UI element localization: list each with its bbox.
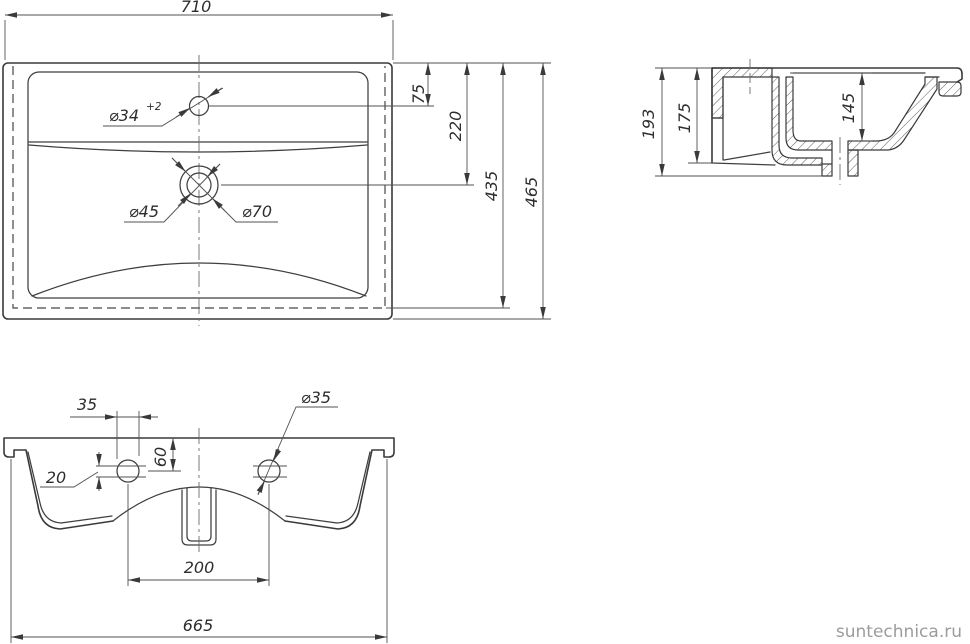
section-bottom-edge [712, 163, 775, 165]
dim-label-220: 220 [446, 111, 465, 142]
front-lip-hook [939, 82, 961, 96]
leader-arrow [178, 194, 191, 207]
dim-label-193: 193 [639, 109, 658, 140]
dim-label-faucet-tolerance: +2 [146, 101, 162, 113]
dim-label-175: 175 [675, 103, 694, 134]
mounting-hole-right [258, 460, 280, 482]
dim-label-145: 145 [839, 93, 858, 124]
drain-boss-left-wall [822, 164, 832, 176]
dim-label-35: 35 [77, 395, 97, 414]
dim-label-hole-diameter: ⌀35 [301, 388, 331, 407]
bottom-view: 35 20 60 ⌀35 200 665 [4, 388, 394, 643]
leader-arrow [172, 158, 186, 172]
dim-label-60: 60 [151, 447, 170, 467]
mounting-hole-left [117, 460, 139, 482]
leader-arrow [258, 481, 265, 494]
watermark-text: suntechnica.ru [836, 622, 962, 642]
top-view: 710 75 220 435 465 ⌀34 +2 ⌀45 ⌀70 [3, 0, 551, 326]
bowl-back-wall-floor [786, 77, 832, 150]
dim-label-20: 20 [46, 468, 66, 487]
leader-arrow [273, 449, 279, 461]
bowl-floor-front-wall [848, 77, 937, 150]
drain-boss-right-wall [848, 150, 858, 176]
dim-label-200: 200 [184, 558, 215, 577]
leader-arrow [212, 198, 225, 211]
back-wall-section [712, 68, 772, 118]
dim-label-faucet-hole: ⌀34 [109, 106, 139, 125]
overflow-channel-wall [772, 77, 822, 165]
dim-label-435: 435 [482, 171, 501, 202]
dim-label-665: 665 [183, 616, 214, 635]
technical-drawing-page: 710 75 220 435 465 ⌀34 +2 ⌀45 ⌀70 [0, 0, 970, 644]
leader-arrow [176, 108, 190, 117]
basin-outer-outline [3, 63, 392, 319]
leader-arrow [208, 164, 221, 177]
leader-arrow [208, 88, 222, 97]
wall-thickness-line [286, 452, 370, 523]
washbasin-drawing: 710 75 220 435 465 ⌀34 +2 ⌀45 ⌀70 [0, 0, 970, 644]
dim-label-710: 710 [181, 0, 212, 16]
dim-label-75: 75 [409, 84, 428, 104]
section-view: 193 175 145 [639, 59, 962, 185]
cavity-floor-slant [724, 152, 770, 160]
bowl-front-curve [29, 145, 367, 152]
dim-label-drain-outer: ⌀70 [242, 202, 272, 221]
dim-label-drain-inner: ⌀45 [129, 202, 159, 221]
dim-label-465: 465 [522, 177, 541, 208]
